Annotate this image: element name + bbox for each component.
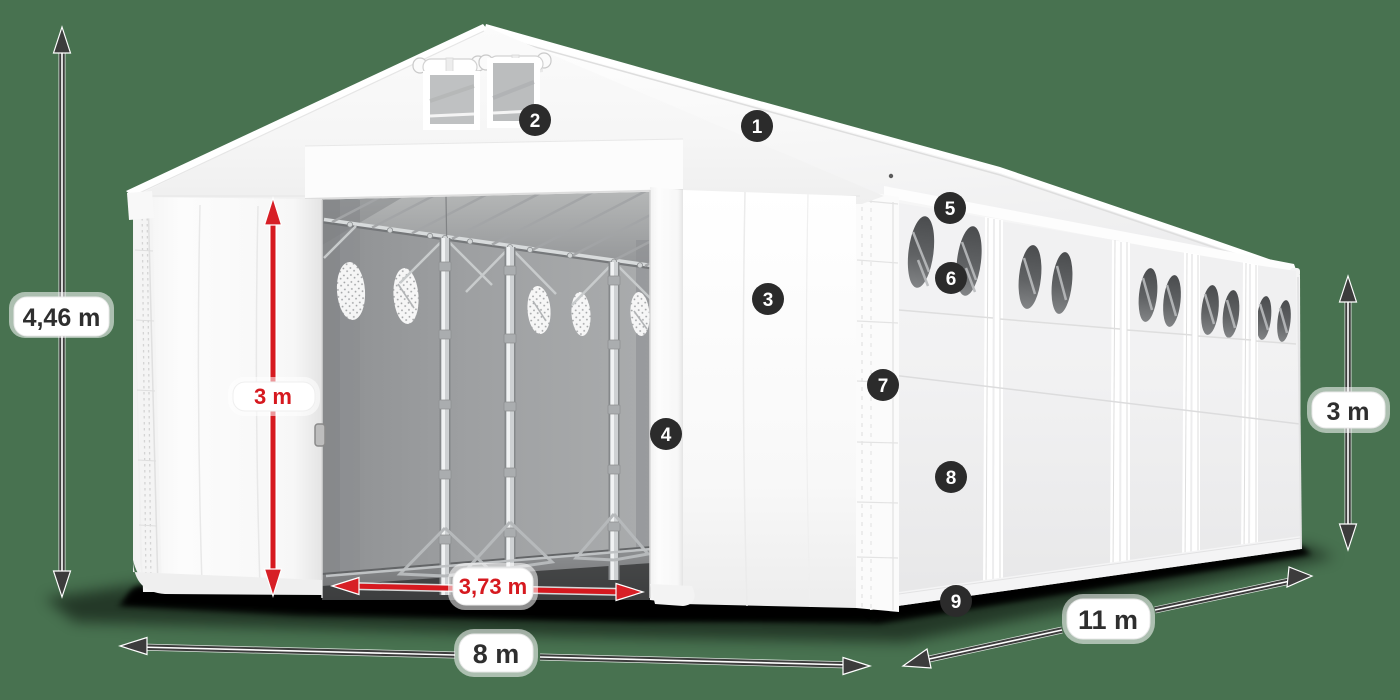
svg-text:3: 3 (763, 290, 774, 311)
svg-text:6: 6 (946, 269, 957, 290)
svg-text:7: 7 (878, 376, 889, 397)
svg-text:11 m: 11 m (1078, 605, 1138, 635)
svg-text:3 m: 3 m (1326, 398, 1369, 426)
svg-text:2: 2 (530, 111, 541, 132)
svg-text:3,73 m: 3,73 m (459, 574, 528, 599)
svg-text:3 m: 3 m (254, 384, 292, 409)
svg-text:8 m: 8 m (473, 639, 520, 669)
svg-text:8: 8 (946, 468, 957, 489)
svg-text:4: 4 (661, 425, 672, 446)
svg-text:1: 1 (752, 117, 763, 138)
svg-text:4,46 m: 4,46 m (23, 304, 101, 332)
svg-text:5: 5 (945, 199, 956, 220)
svg-text:9: 9 (951, 592, 962, 613)
